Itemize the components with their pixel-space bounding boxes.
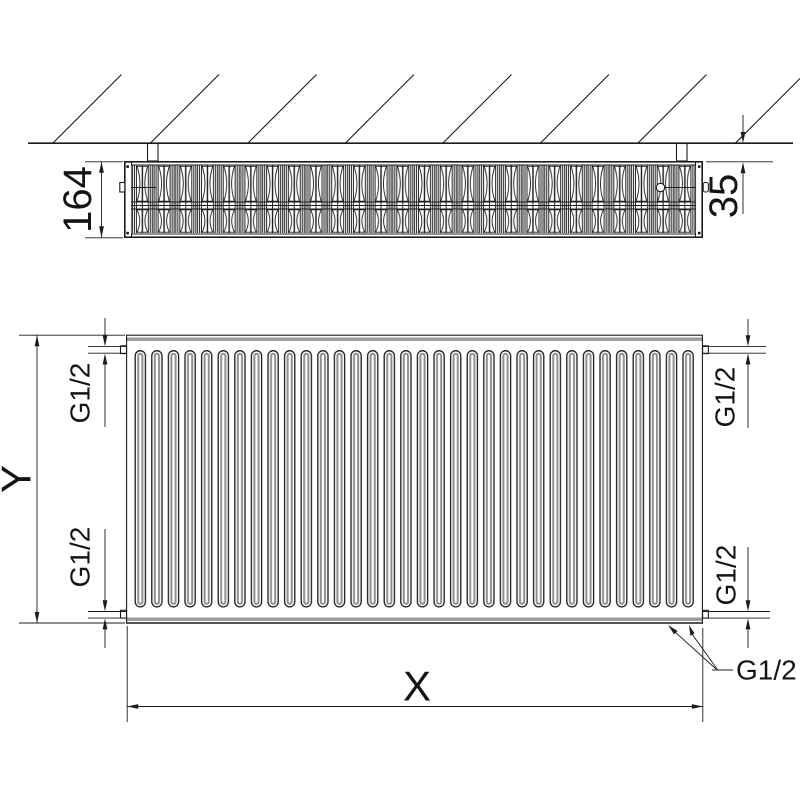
thread-label-top-left: G1/2 (65, 363, 96, 424)
thread-label-top-right: G1/2 (710, 367, 741, 428)
radiator-top-view (120, 162, 709, 237)
dim-height-label: Y (0, 465, 40, 493)
side-stub-left (120, 183, 125, 193)
valve-insert (656, 183, 664, 191)
dim-width: X (127, 626, 703, 722)
thread-dim-bottom-left: G1/2 (65, 527, 127, 648)
thread-label-bottom-connections: G1/2 (736, 655, 797, 686)
radiator-front-view (121, 335, 709, 623)
wall-bracket-right (677, 144, 688, 162)
dim-wall-distance: 35 (702, 115, 773, 218)
wall-hatching (53, 75, 800, 144)
dim-depth: 164 (56, 162, 123, 238)
thread-leader-bottom-connections: G1/2 (668, 625, 797, 686)
convector-fins (132, 166, 696, 234)
thread-dim-top-left: G1/2 (65, 318, 127, 427)
wall-bracket-left (148, 144, 159, 162)
thread-label-bottom-left: G1/2 (65, 527, 96, 588)
top-view: 164 35 (28, 75, 800, 238)
thread-dim-bottom-right: G1/2 (703, 545, 770, 648)
thread-dim-top-right: G1/2 (703, 319, 766, 428)
radiator-technical-drawing: 164 35 (0, 0, 800, 800)
thread-label-bottom-right: G1/2 (711, 545, 742, 606)
front-view: Y X G1/2 G1/2 (0, 318, 797, 722)
front-corrugations (134, 350, 698, 608)
dim-wall-distance-label: 35 (702, 174, 746, 219)
dim-depth-label: 164 (56, 166, 100, 233)
dim-height: Y (0, 335, 125, 623)
dim-width-label: X (403, 663, 431, 710)
